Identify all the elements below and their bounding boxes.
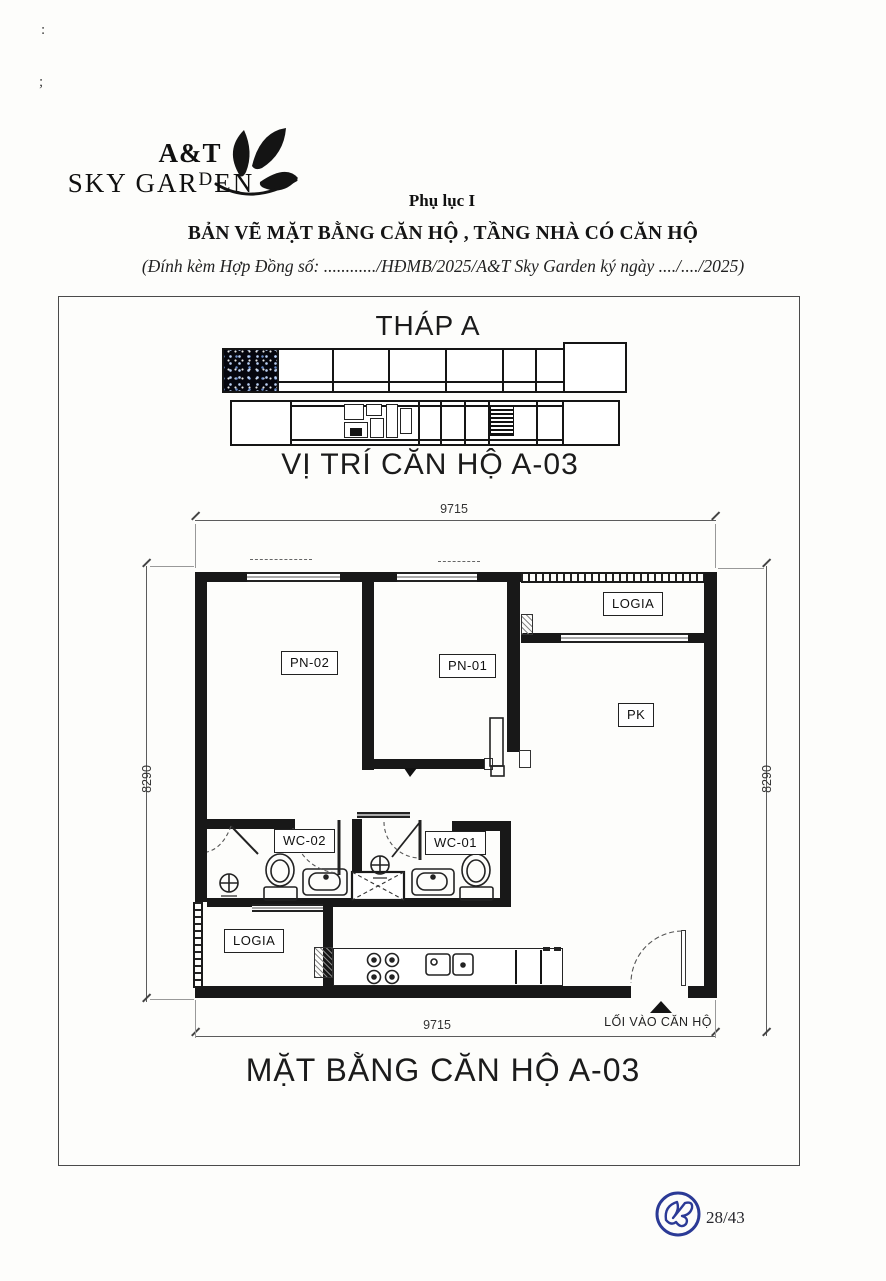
- room-label-pk: PK: [618, 703, 654, 727]
- core-dark-cell: [350, 428, 362, 436]
- brand-logo-line2-post: EN: [214, 168, 254, 198]
- stove-burners: [368, 954, 399, 984]
- unit-divider: [562, 402, 564, 444]
- tower-strip-end-unit: [563, 342, 627, 393]
- counter-handle: [543, 947, 550, 951]
- room-label-wc02: WC-02: [274, 829, 335, 853]
- brand-logo-line2: SKY GARDEN: [42, 168, 280, 199]
- brand-logo-line2-d: D: [199, 169, 215, 190]
- unit-divider: [464, 402, 466, 444]
- document-subtitle: (Đính kèm Hợp Đồng số: ............/HĐMB…: [60, 256, 826, 277]
- extension-line: [718, 568, 764, 569]
- core-room: [400, 408, 412, 434]
- room-label-logia-bottom: LOGIA: [224, 929, 284, 953]
- curtain-dash: [438, 561, 480, 562]
- sink-wc01: [412, 869, 454, 895]
- kitchen-sink: [426, 954, 473, 975]
- document-title: BẢN VẼ MẶT BẰNG CĂN HỘ , TẦNG NHÀ CÓ CĂN…: [60, 223, 826, 245]
- extension-line: [195, 524, 196, 568]
- unit-divider: [502, 350, 504, 391]
- page-number: 28/43: [706, 1208, 745, 1228]
- core-room: [386, 404, 398, 438]
- curtain-dash: [250, 559, 312, 560]
- unit-divider: [445, 350, 447, 391]
- unit-divider: [418, 402, 420, 444]
- highlighted-unit-cell: [224, 350, 277, 391]
- scan-artifact-mark: ;: [39, 74, 43, 91]
- unit-divider: [277, 350, 279, 391]
- door-swing-hall: [207, 826, 231, 852]
- unit-location-title: VỊ TRÍ CĂN HỘ A-03: [218, 448, 642, 482]
- unit-divider: [535, 350, 537, 391]
- dimension-top-value: 9715: [404, 502, 504, 516]
- entrance-label: LỐI VÀO CĂN HỘ: [594, 1015, 722, 1029]
- toilet-wc01: [460, 854, 493, 900]
- unit-divider: [290, 402, 292, 444]
- door-panel-wc01: [392, 822, 420, 857]
- door-marker-pn01: [404, 768, 417, 777]
- dimension-line-bottom: [195, 1036, 716, 1037]
- entrance-arrow-icon: [650, 1001, 672, 1013]
- scan-artifact-mark: :: [41, 22, 45, 39]
- extension-line: [715, 524, 716, 568]
- tower-strip-bottom-row: [230, 400, 620, 446]
- stamp-logo-icon: [652, 1188, 704, 1240]
- room-label-pn02: PN-02: [281, 651, 338, 675]
- scanned-document-page: : ; A&T SKY GARDEN Phụ lục I BẢN VẼ MẶT …: [0, 0, 886, 1281]
- elevator-core-cell: [490, 406, 514, 436]
- room-label-logia-top: LOGIA: [603, 592, 663, 616]
- brand-logo-line2-pre: SKY GAR: [68, 168, 199, 198]
- shower-symbol-wc02: [220, 874, 238, 896]
- floor-plan-title: MẶT BẰNG CĂN HỘ A-03: [220, 1052, 666, 1089]
- unit-divider: [388, 350, 390, 391]
- room-label-pn01: PN-01: [439, 654, 496, 678]
- dimension-left-value: 8290: [140, 749, 154, 809]
- entrance-door-swing: [631, 931, 682, 983]
- tower-title: THÁP A: [298, 310, 558, 342]
- strip-inner-line: [290, 405, 562, 407]
- dimension-bottom-value: 9715: [387, 1018, 487, 1032]
- core-room: [366, 404, 382, 416]
- extension-line: [150, 566, 194, 567]
- toilet-wc02: [264, 854, 297, 900]
- unit-divider: [536, 402, 538, 444]
- unit-divider: [332, 350, 334, 391]
- extension-line: [195, 1000, 196, 1038]
- core-room: [370, 418, 384, 438]
- wardrobe-pn01: [490, 718, 504, 776]
- dimension-right-value: 8290: [760, 749, 774, 809]
- counter-handle: [554, 947, 561, 951]
- appendix-label: Phụ lục I: [357, 191, 527, 211]
- strip-inner-line: [290, 439, 562, 441]
- unit-divider: [440, 402, 442, 444]
- door-leaf-hall: [231, 826, 258, 854]
- room-label-wc01: WC-01: [425, 831, 486, 855]
- dimension-line-top: [195, 520, 716, 521]
- core-room: [344, 404, 364, 420]
- extension-line: [150, 999, 194, 1000]
